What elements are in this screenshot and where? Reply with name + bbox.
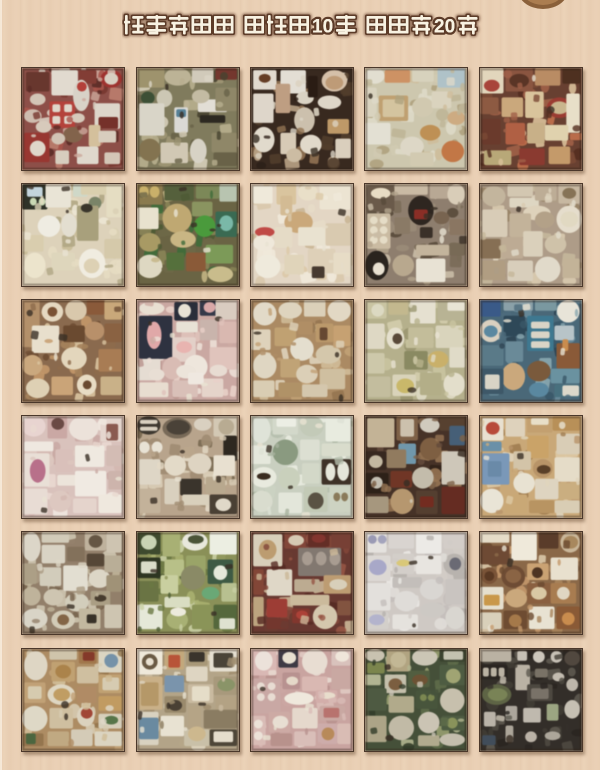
svg-text:20: 20 [434,17,455,38]
svg-text:10: 10 [312,17,333,38]
